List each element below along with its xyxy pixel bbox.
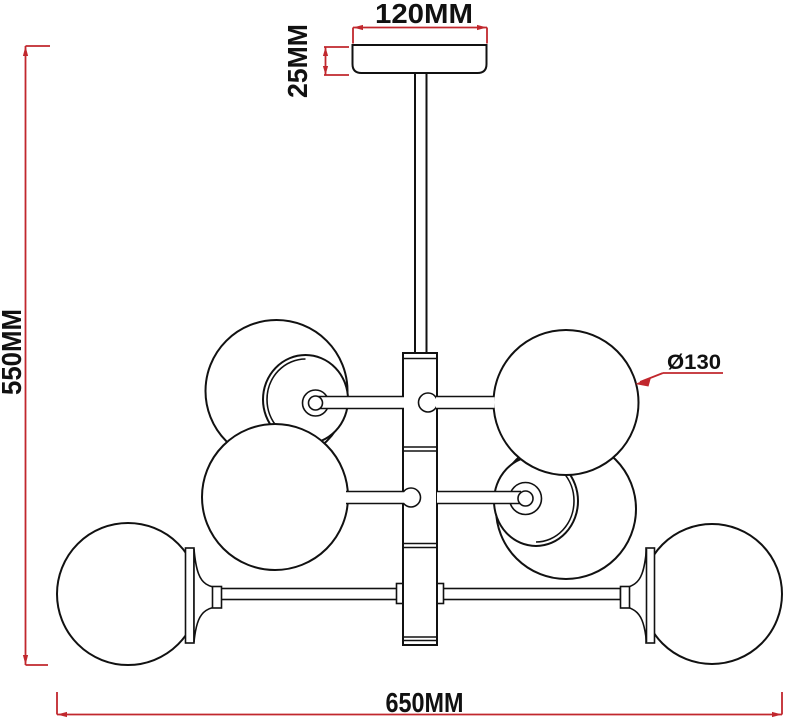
- ceiling-canopy: [353, 45, 487, 73]
- dimension-globe-diameter-leader: [635, 373, 723, 387]
- arm-hub: [309, 396, 323, 410]
- socket-flare-right: [629, 549, 647, 642]
- socket-flare-left: [194, 549, 213, 642]
- overall-width-label: 650MM: [386, 687, 464, 718]
- globe-top-right: [494, 330, 639, 475]
- globe-bottom-right: [642, 524, 782, 664]
- dimension-canopy-height: [323, 47, 349, 75]
- socket-cap-left: [186, 548, 195, 643]
- arm-hub: [518, 491, 533, 506]
- drawing-svg: 120MM 25MM 550MM 650MM Ø130: [0, 0, 788, 720]
- chandelier-dimension-drawing: 120MM 25MM 550MM 650MM Ø130: [0, 0, 788, 720]
- column-joint-ring: [402, 488, 421, 507]
- canopy-width-label: 120MM: [375, 0, 473, 29]
- globe-middle-left: [202, 424, 348, 570]
- globe-bottom-left: [57, 523, 199, 665]
- ferrule-left: [213, 587, 222, 609]
- ferrule-right: [621, 587, 630, 609]
- hanging-stem: [415, 73, 427, 354]
- globe-diameter-label: Ø130: [667, 351, 721, 374]
- overall-height-label: 550MM: [0, 309, 27, 395]
- column-joint-ring: [419, 393, 438, 412]
- canopy-height-label: 25MM: [282, 24, 313, 98]
